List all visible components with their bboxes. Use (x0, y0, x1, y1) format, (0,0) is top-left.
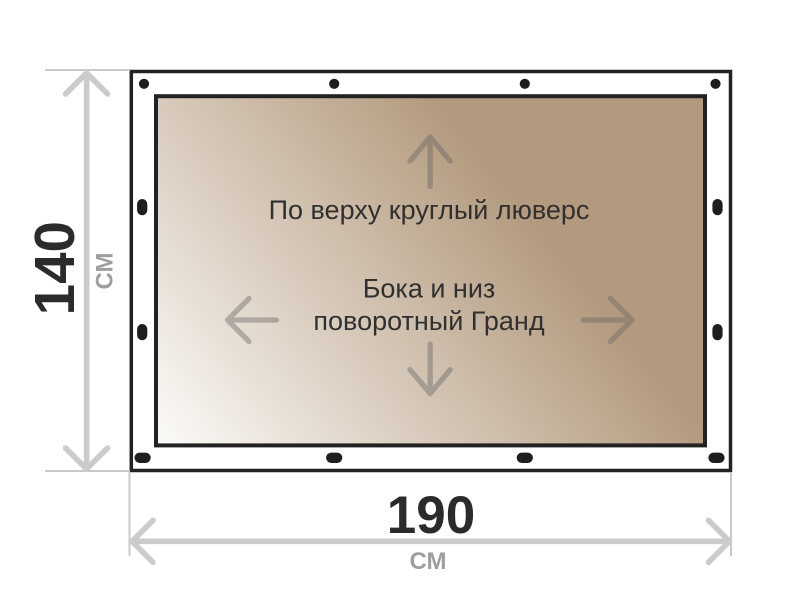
svg-text:По верху круглый люверс: По верху круглый люверс (269, 195, 590, 225)
svg-text:СМ: СМ (92, 252, 119, 289)
svg-text:Бока и низ: Бока и низ (363, 273, 496, 303)
svg-text:190: 190 (387, 486, 475, 545)
svg-text:140: 140 (23, 221, 86, 315)
svg-text:поворотный Гранд: поворотный Гранд (313, 306, 544, 336)
svg-text:СМ: СМ (409, 548, 446, 575)
